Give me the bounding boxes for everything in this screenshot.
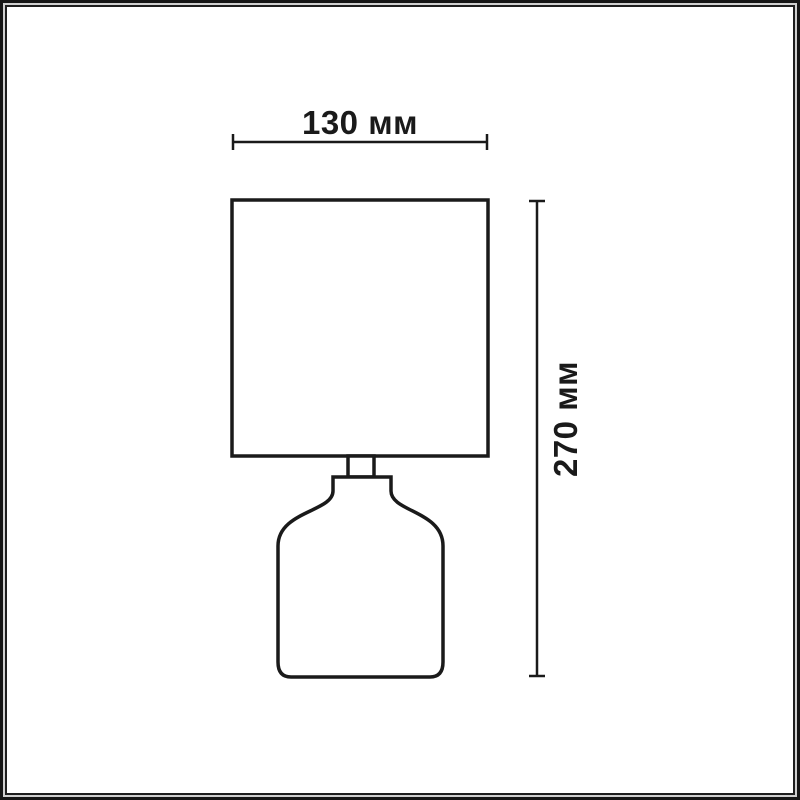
lamp-base-outline — [278, 477, 443, 677]
height-dimension-line — [529, 201, 545, 676]
width-dimension-label: 130 мм — [302, 104, 418, 141]
dimension-drawing-page: 130 мм 270 мм — [0, 0, 800, 800]
lampshade-outline — [232, 200, 488, 456]
height-dimension-label: 270 мм — [547, 361, 584, 477]
lamp-dimension-drawing: 130 мм 270 мм — [0, 0, 800, 800]
lamp-neck-outline — [348, 456, 374, 477]
